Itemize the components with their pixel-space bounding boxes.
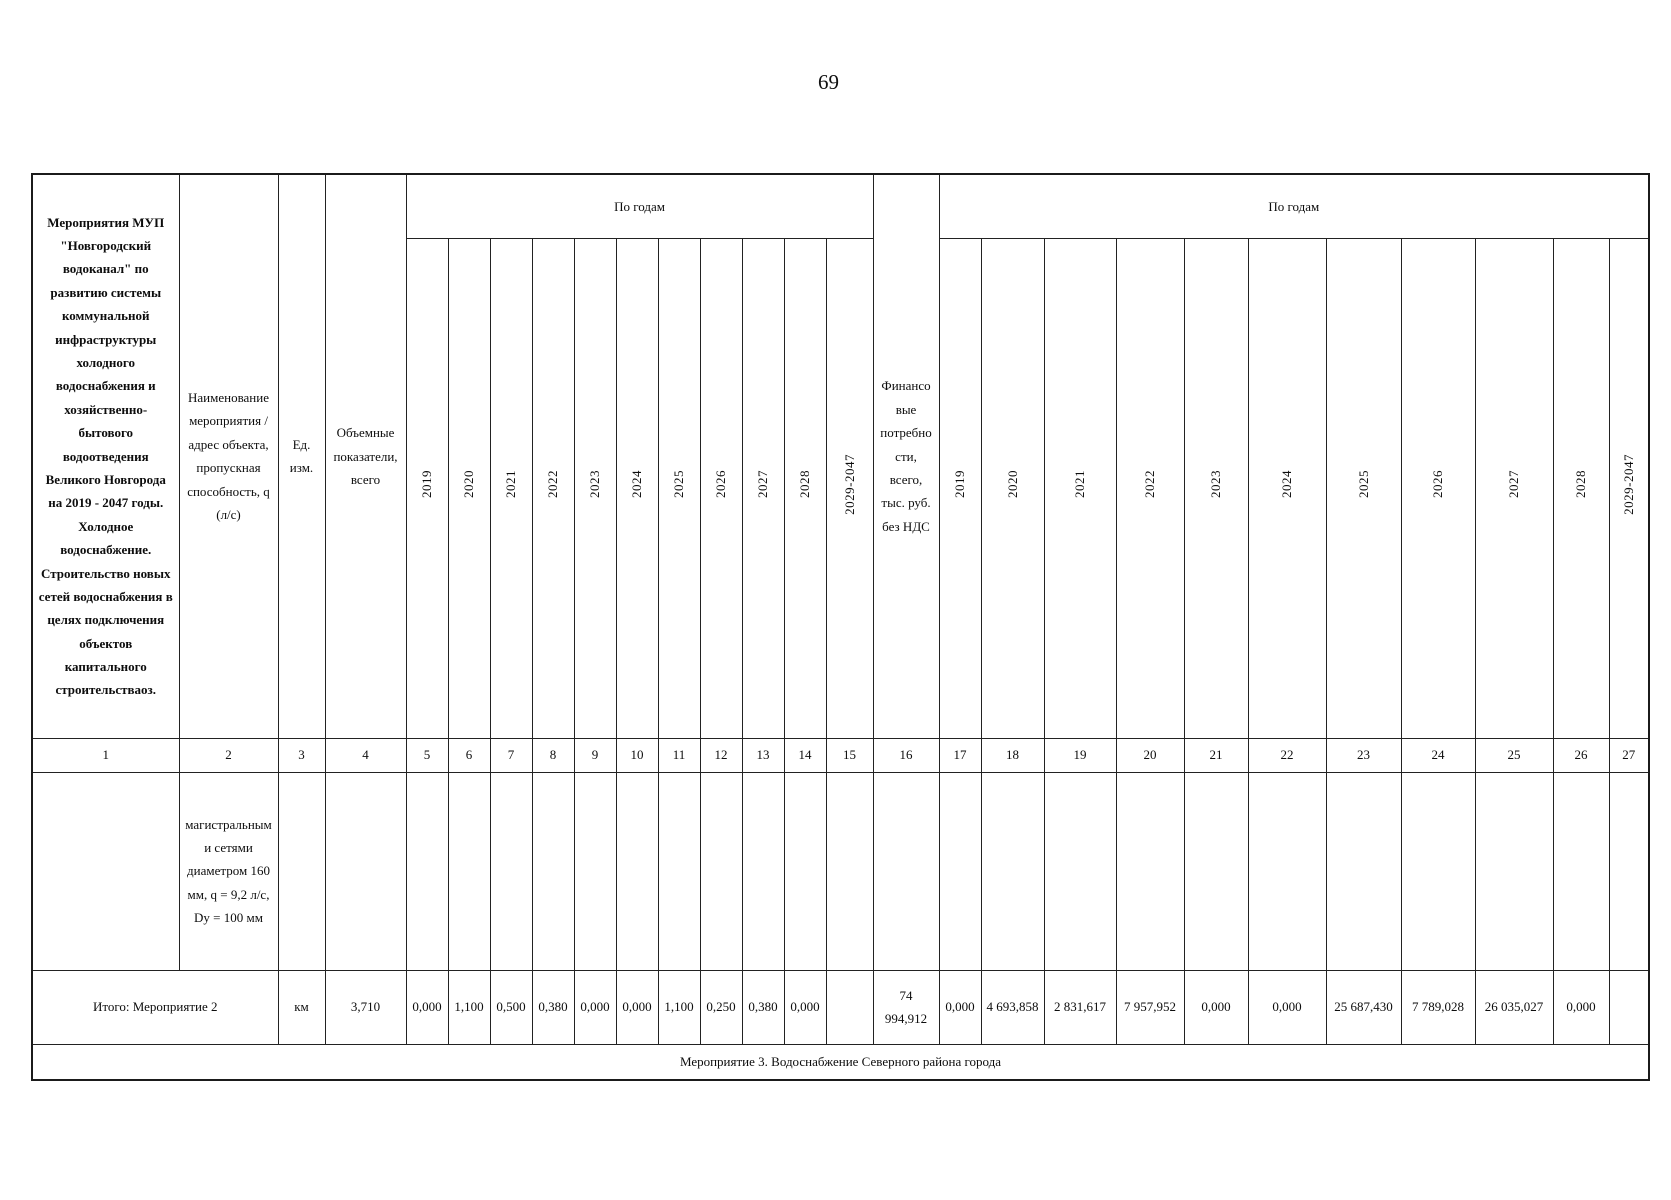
year-label: 2027 — [751, 470, 774, 498]
empty-cell — [658, 772, 700, 970]
header-group-row: Мероприятия МУП "Новгородский водоканал"… — [32, 174, 1649, 238]
year-label: 2028 — [1569, 470, 1592, 498]
column-number: 27 — [1609, 738, 1649, 772]
year-label: 2028 — [793, 470, 816, 498]
finance-year-header-cell: 2020 — [981, 238, 1044, 738]
volume-year-header-cell: 2020 — [448, 238, 490, 738]
measure-detail-row: магистральными сетями диаметром 160 мм, … — [32, 772, 1649, 970]
total-finance-year-cell: 0,000 — [1184, 970, 1248, 1044]
empty-cell — [278, 772, 325, 970]
total-finance-year-cell: 26 035,027 — [1475, 970, 1553, 1044]
column-number: 14 — [784, 738, 826, 772]
total-finance-year-cell — [1609, 970, 1649, 1044]
total-finance-year-cell: 0,000 — [939, 970, 981, 1044]
finance-year-header-cell: 2021 — [1044, 238, 1116, 738]
by-years-finance-group-header: По годам — [939, 174, 1649, 238]
year-label: 2026 — [1426, 470, 1449, 498]
total-finance-cell: 74 994,912 — [873, 970, 939, 1044]
column-number: 1 — [32, 738, 179, 772]
year-label: 2024 — [1275, 470, 1298, 498]
empty-cell — [1184, 772, 1248, 970]
finance-year-header-cell: 2019 — [939, 238, 981, 738]
empty-cell — [1553, 772, 1609, 970]
column-number: 3 — [278, 738, 325, 772]
page-number: 69 — [818, 70, 839, 95]
column-number: 23 — [1326, 738, 1401, 772]
column-number: 15 — [826, 738, 873, 772]
total-volume-year-cell: 0,000 — [574, 970, 616, 1044]
year-label: 2025 — [667, 470, 690, 498]
total-volume-year-cell: 0,500 — [490, 970, 532, 1044]
year-label: 2029-2047 — [838, 454, 861, 515]
measures-table: Мероприятия МУП "Новгородский водоканал"… — [31, 173, 1650, 1081]
column-number: 20 — [1116, 738, 1184, 772]
volume-year-header-cell: 2029-2047 — [826, 238, 873, 738]
year-label: 2029-2047 — [1617, 454, 1640, 515]
empty-cell — [742, 772, 784, 970]
column-number: 24 — [1401, 738, 1475, 772]
volume-year-header-cell: 2024 — [616, 238, 658, 738]
measure-name-header-cell: Наименование мероприятия /адрес объекта,… — [179, 174, 278, 738]
column-number: 16 — [873, 738, 939, 772]
finance-year-header-cell: 2028 — [1553, 238, 1609, 738]
empty-cell — [981, 772, 1044, 970]
year-label: 2027 — [1502, 470, 1525, 498]
year-label: 2022 — [541, 470, 564, 498]
total-finance-year-cell: 7 957,952 — [1116, 970, 1184, 1044]
volume-year-header-cell: 2021 — [490, 238, 532, 738]
finance-year-header-cell: 2029-2047 — [1609, 238, 1649, 738]
total-finance-year-cell: 7 789,028 — [1401, 970, 1475, 1044]
total-finance-year-cell: 4 693,858 — [981, 970, 1044, 1044]
empty-cell — [1044, 772, 1116, 970]
year-label: 2023 — [1204, 470, 1227, 498]
column-number: 6 — [448, 738, 490, 772]
volume-year-header-cell: 2022 — [532, 238, 574, 738]
finance-year-header-cell: 2024 — [1248, 238, 1326, 738]
year-label: 2021 — [1068, 470, 1091, 498]
volume-year-header-cell: 2026 — [700, 238, 742, 738]
volume-year-header-cell: 2025 — [658, 238, 700, 738]
total-volume-year-cell: 0,250 — [700, 970, 742, 1044]
total-volume-year-cell: 1,100 — [658, 970, 700, 1044]
column-number: 4 — [325, 738, 406, 772]
volume-year-header-cell: 2019 — [406, 238, 448, 738]
year-label: 2019 — [948, 470, 971, 498]
measure-detail-cell: магистральными сетями диаметром 160 мм, … — [179, 772, 278, 970]
total-volume-year-cell: 0,000 — [616, 970, 658, 1044]
column-number: 21 — [1184, 738, 1248, 772]
total-row: Итого: Мероприятие 2 км 3,710 0,000 1,10… — [32, 970, 1649, 1044]
finance-year-header-cell: 2027 — [1475, 238, 1553, 738]
empty-cell — [1609, 772, 1649, 970]
volume-year-header-cell: 2027 — [742, 238, 784, 738]
empty-cell — [784, 772, 826, 970]
empty-cell — [1401, 772, 1475, 970]
column-number: 25 — [1475, 738, 1553, 772]
empty-cell — [700, 772, 742, 970]
total-label-cell: Итого: Мероприятие 2 — [32, 970, 278, 1044]
volume-header-cell: Объемные показатели, всего — [325, 174, 406, 738]
empty-cell — [448, 772, 490, 970]
empty-cell — [32, 772, 179, 970]
total-volume-year-cell: 0,380 — [532, 970, 574, 1044]
column-number: 19 — [1044, 738, 1116, 772]
year-label: 2020 — [1001, 470, 1024, 498]
empty-cell — [826, 772, 873, 970]
finance-needs-header-cell: Финансовые потребности, всего, тыс. руб.… — [873, 174, 939, 738]
total-finance-year-cell: 25 687,430 — [1326, 970, 1401, 1044]
section-row: Мероприятие 3. Водоснабжение Северного р… — [32, 1044, 1649, 1080]
year-label: 2025 — [1352, 470, 1375, 498]
empty-cell — [325, 772, 406, 970]
empty-cell — [574, 772, 616, 970]
column-number: 9 — [574, 738, 616, 772]
finance-year-header-cell: 2023 — [1184, 238, 1248, 738]
volume-year-header-cell: 2023 — [574, 238, 616, 738]
total-finance-year-cell: 0,000 — [1248, 970, 1326, 1044]
column-number: 26 — [1553, 738, 1609, 772]
column-number: 10 — [616, 738, 658, 772]
year-label: 2022 — [1138, 470, 1161, 498]
empty-cell — [1326, 772, 1401, 970]
column-number: 22 — [1248, 738, 1326, 772]
program-title-cell: Мероприятия МУП "Новгородский водоканал"… — [32, 174, 179, 738]
section-title-cell: Мероприятие 3. Водоснабжение Северного р… — [32, 1044, 1649, 1080]
empty-cell — [1248, 772, 1326, 970]
document-page: 69 Мероприятия МУП "Новгородский водокан… — [0, 0, 1671, 1200]
column-number: 13 — [742, 738, 784, 772]
year-label: 2019 — [415, 470, 438, 498]
total-volume-year-cell: 0,000 — [784, 970, 826, 1044]
year-label: 2024 — [625, 470, 648, 498]
total-unit-cell: км — [278, 970, 325, 1044]
volume-year-header-cell: 2028 — [784, 238, 826, 738]
total-volume-cell: 3,710 — [325, 970, 406, 1044]
finance-year-header-cell: 2022 — [1116, 238, 1184, 738]
total-volume-year-cell — [826, 970, 873, 1044]
empty-cell — [532, 772, 574, 970]
column-number: 2 — [179, 738, 278, 772]
total-volume-year-cell: 0,380 — [742, 970, 784, 1044]
total-volume-year-cell: 0,000 — [406, 970, 448, 1044]
empty-cell — [939, 772, 981, 970]
column-number: 18 — [981, 738, 1044, 772]
column-number: 7 — [490, 738, 532, 772]
column-number: 8 — [532, 738, 574, 772]
by-years-volume-group-header: По годам — [406, 174, 873, 238]
empty-cell — [1475, 772, 1553, 970]
total-volume-year-cell: 1,100 — [448, 970, 490, 1044]
column-number-row: 1 2 3 4 5 6 7 8 9 10 11 12 13 14 15 16 1… — [32, 738, 1649, 772]
total-finance-year-cell: 0,000 — [1553, 970, 1609, 1044]
year-label: 2021 — [499, 470, 522, 498]
total-finance-year-cell: 2 831,617 — [1044, 970, 1116, 1044]
empty-cell — [406, 772, 448, 970]
year-label: 2023 — [583, 470, 606, 498]
unit-header-cell: Ед. изм. — [278, 174, 325, 738]
column-number: 11 — [658, 738, 700, 772]
empty-cell — [490, 772, 532, 970]
column-number: 17 — [939, 738, 981, 772]
column-number: 5 — [406, 738, 448, 772]
year-label: 2020 — [457, 470, 480, 498]
finance-year-header-cell: 2026 — [1401, 238, 1475, 738]
year-label: 2026 — [709, 470, 732, 498]
finance-year-header-cell: 2025 — [1326, 238, 1401, 738]
empty-cell — [873, 772, 939, 970]
empty-cell — [616, 772, 658, 970]
empty-cell — [1116, 772, 1184, 970]
column-number: 12 — [700, 738, 742, 772]
